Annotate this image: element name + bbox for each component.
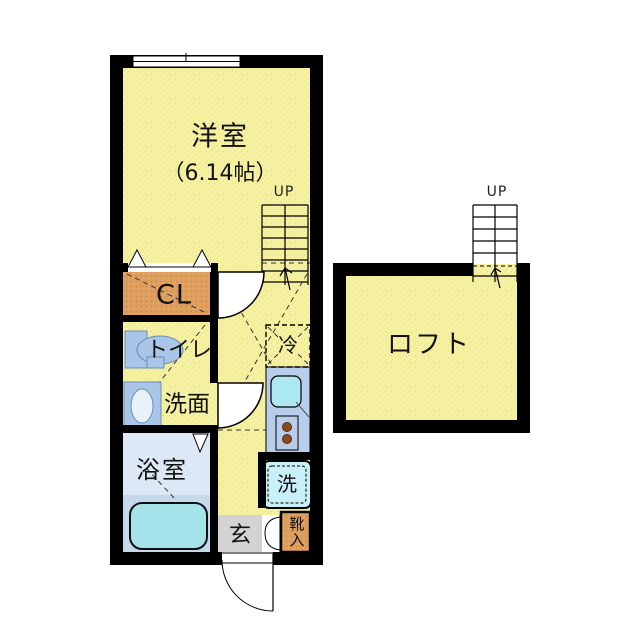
shoe-box-label: 靴入 <box>289 516 304 548</box>
washer-label: 洗 <box>277 474 297 494</box>
loft-stairs-icon <box>473 205 517 288</box>
washroom-label: 洗面 <box>164 394 210 417</box>
refrigerator-label: 冷 <box>278 335 298 355</box>
stove-burner-icon <box>283 423 292 432</box>
loft-label: ロフト <box>387 332 471 358</box>
main-room-label: 洋室 <box>191 124 249 151</box>
stove-burner-icon <box>283 435 292 444</box>
floor-plan-drawing <box>0 0 640 640</box>
main-room-size: （6.14帖） <box>163 163 278 185</box>
washbasin-icon <box>124 382 161 429</box>
bathroom-label: 浴室 <box>136 458 188 482</box>
main-stairs-up-label: UP <box>274 185 295 199</box>
loft-stairs-up-label: UP <box>487 185 508 199</box>
floor-plan-canvas: 洋室 （6.14帖） CL トイレ 洗面 浴室 冷 洗 玄 靴入 ロフト UP … <box>0 0 640 640</box>
closet-label: CL <box>156 282 192 309</box>
toilet-label: トイレ <box>146 340 212 362</box>
bathtub-icon <box>130 503 207 549</box>
entrance-label: 玄 <box>229 525 251 547</box>
entrance-door-icon <box>222 552 273 611</box>
